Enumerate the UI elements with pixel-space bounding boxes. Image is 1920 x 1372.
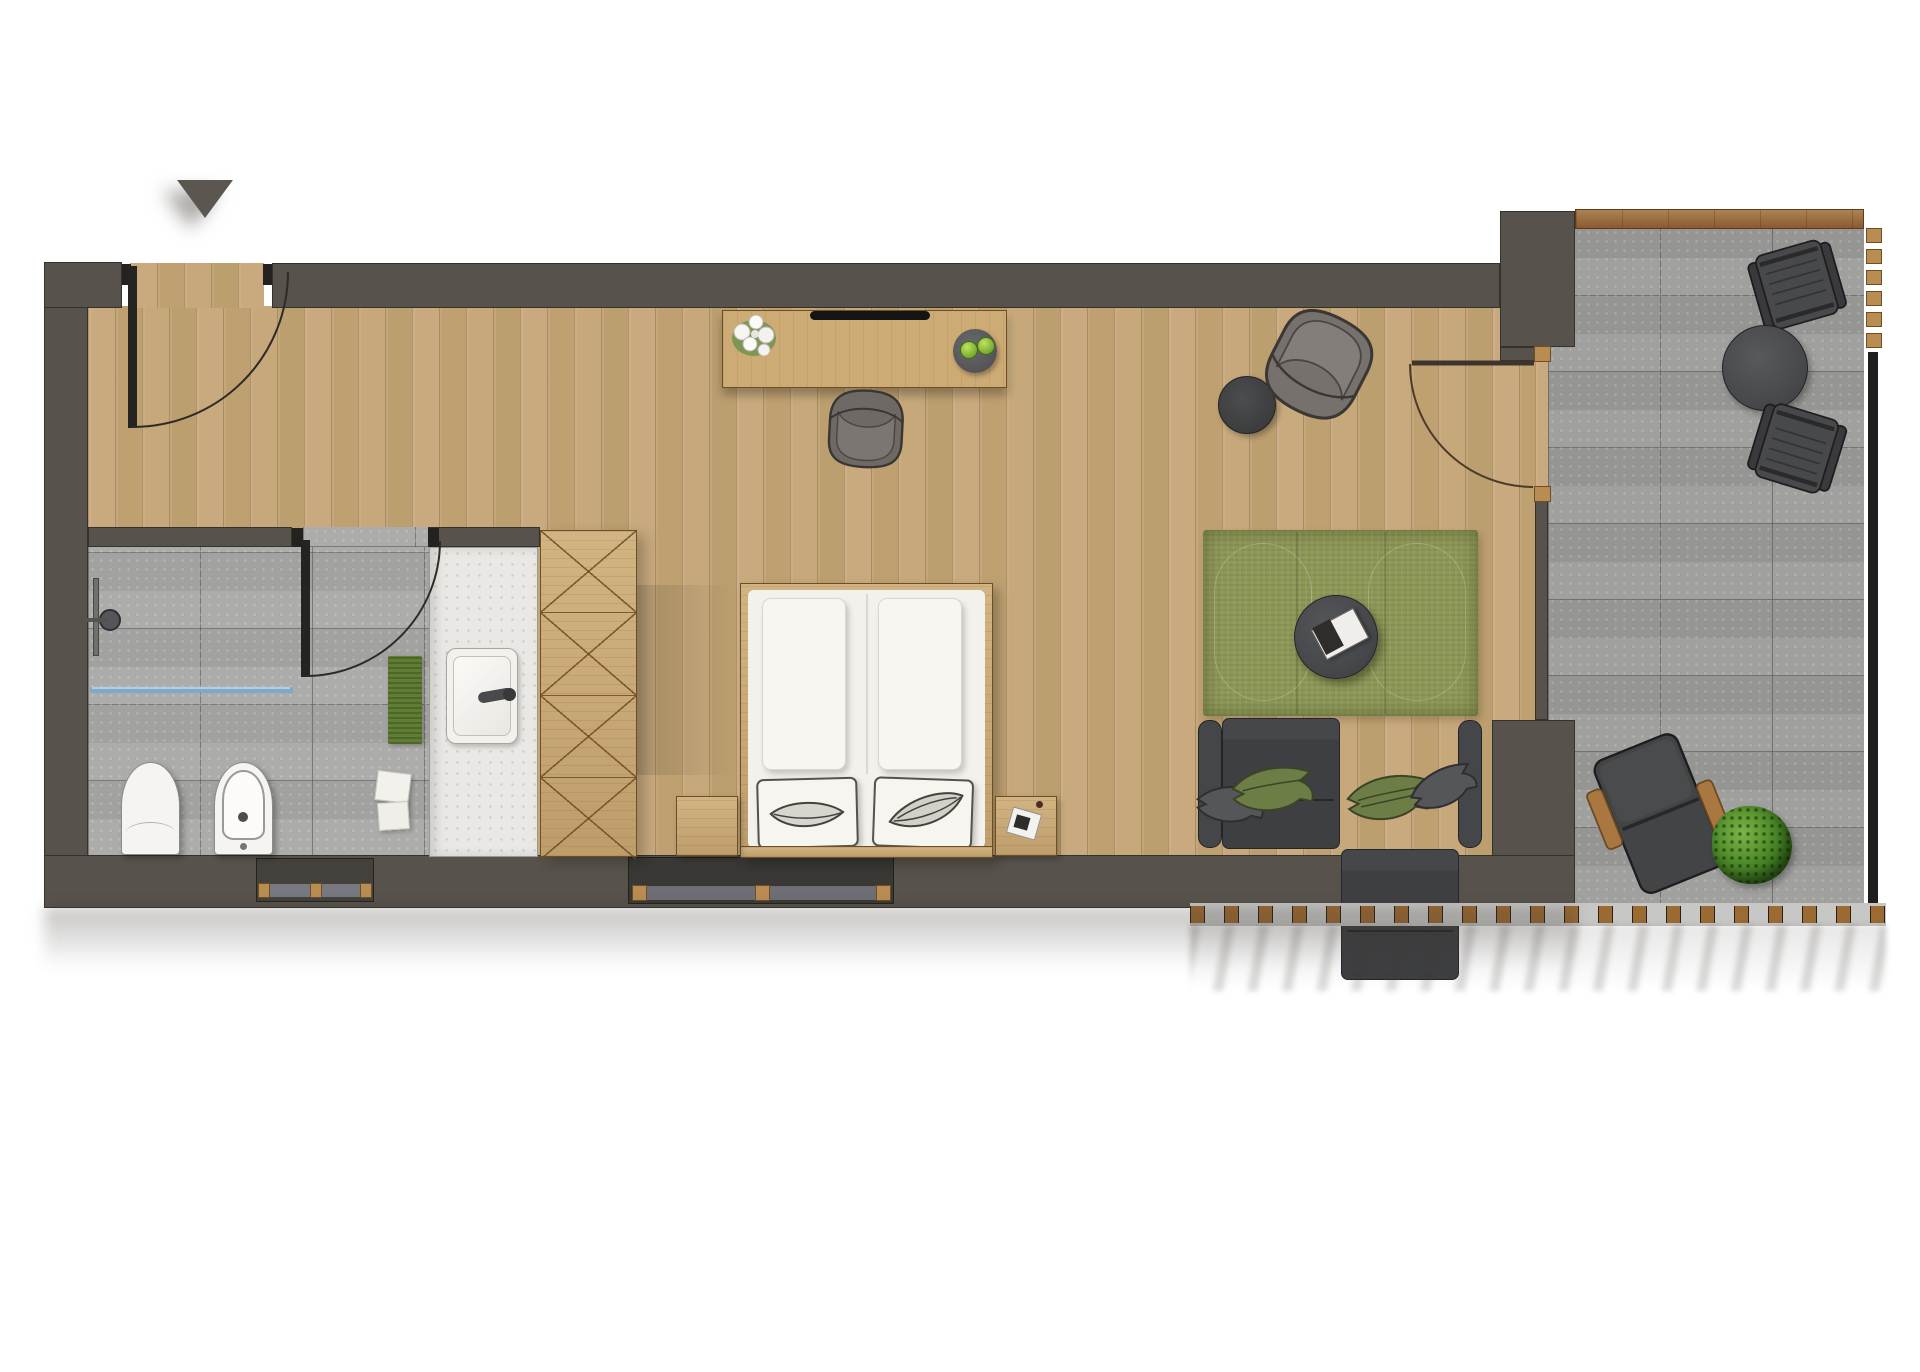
entry-door-arc [133, 272, 288, 427]
pillow-leaf-right [887, 790, 967, 831]
pillow-leaf-left [770, 800, 843, 829]
floor-plan-canvas [0, 0, 1920, 1372]
sofa-cushion-gray-right [1407, 762, 1480, 813]
linework-overlay [0, 0, 1920, 1372]
terrace-door-arc [1410, 364, 1533, 487]
bathroom-door-arc [305, 541, 440, 676]
